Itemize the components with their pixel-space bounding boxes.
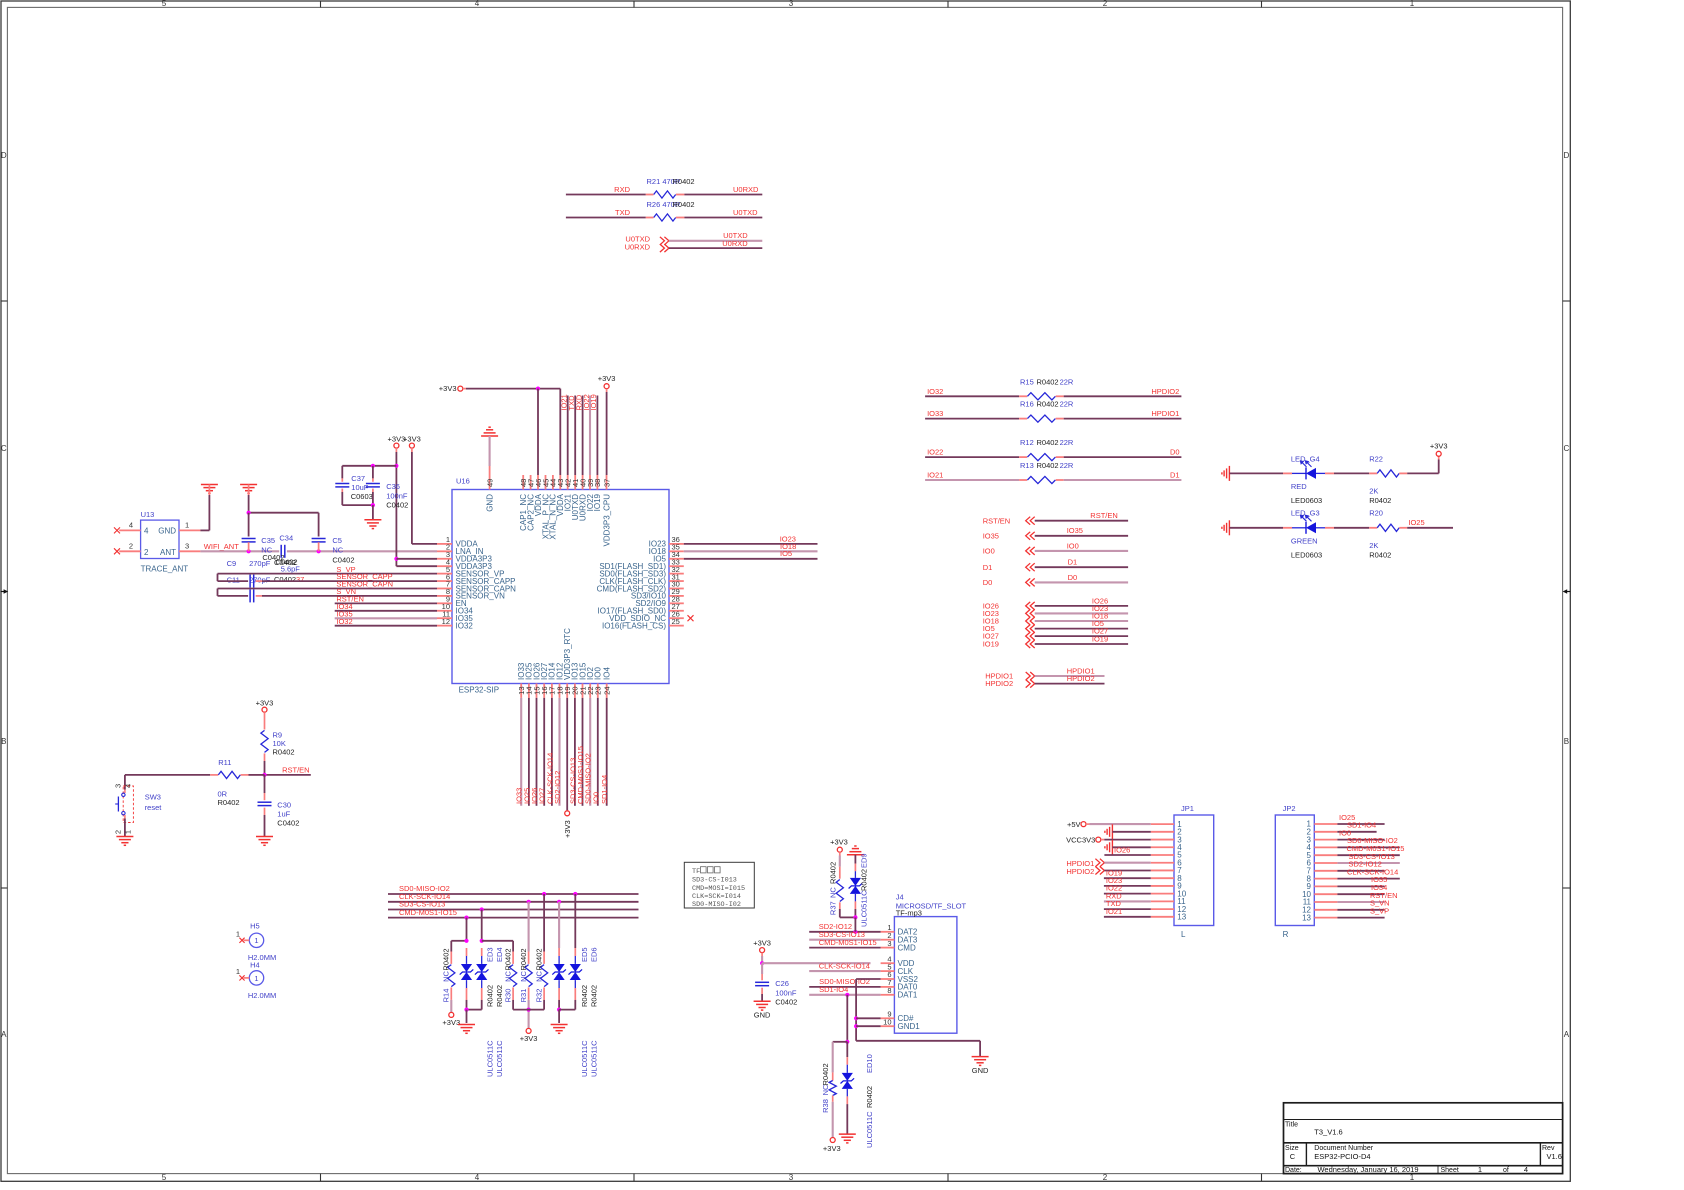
svg-text:R0402: R0402 (590, 985, 599, 1007)
svg-text:5: 5 (162, 0, 167, 8)
svg-text:ED6: ED6 (590, 947, 599, 962)
svg-text:IO16(FLASH_CS): IO16(FLASH_CS) (602, 621, 666, 630)
svg-text:1: 1 (236, 929, 240, 938)
svg-text:LED0603: LED0603 (1291, 551, 1322, 560)
svg-text:22R: 22R (1060, 461, 1074, 470)
svg-text:IO19: IO19 (983, 640, 999, 649)
svg-text:+3V3: +3V3 (823, 1144, 841, 1153)
svg-text:1: 1 (254, 936, 258, 945)
svg-text:U0RXD: U0RXD (733, 185, 759, 194)
svg-text:C0402: C0402 (274, 558, 296, 567)
svg-text:+3V3: +3V3 (753, 939, 771, 948)
svg-text:4: 4 (1524, 1165, 1528, 1174)
svg-text:R0402: R0402 (534, 948, 543, 970)
svg-text:SD1-IO4: SD1-IO4 (600, 775, 609, 804)
svg-text:HPDIO2: HPDIO2 (985, 679, 1013, 688)
svg-text:3: 3 (185, 542, 189, 551)
svg-text:CMD-M0S1-IO15: CMD-M0S1-IO15 (399, 908, 457, 917)
svg-text:Title: Title (1285, 1121, 1298, 1128)
svg-text:LED_G3: LED_G3 (1291, 509, 1320, 518)
svg-text:+3V3: +3V3 (563, 820, 572, 838)
svg-text:ULC0511C: ULC0511C (865, 1111, 874, 1148)
svg-text:R0402: R0402 (821, 1063, 830, 1085)
svg-text:TXD: TXD (615, 208, 631, 217)
svg-text:CLK-SCK-IO14: CLK-SCK-IO14 (819, 961, 870, 970)
svg-text:VDD3P3_CPU: VDD3P3_CPU (602, 494, 611, 547)
svg-text:WIFI_ANT: WIFI_ANT (204, 542, 239, 551)
svg-text:SD1-IO4: SD1-IO4 (819, 985, 848, 994)
svg-text:JP1: JP1 (1181, 804, 1194, 813)
svg-text:IO32: IO32 (336, 617, 352, 626)
svg-text:VCC3V3: VCC3V3 (1066, 836, 1095, 845)
svg-text:R31: R31 (519, 989, 528, 1003)
svg-text:C: C (1, 444, 7, 453)
svg-text:GREEN: GREEN (1291, 536, 1318, 545)
svg-text:R14: R14 (442, 989, 451, 1003)
svg-text:2: 2 (113, 830, 122, 834)
svg-text:NC: NC (442, 971, 451, 982)
svg-text:C37: C37 (351, 474, 365, 483)
svg-text:D1: D1 (1068, 558, 1078, 567)
svg-text:5: 5 (162, 1173, 167, 1182)
svg-text:C30: C30 (277, 801, 291, 810)
svg-text:ESP32-PCIO-D4: ESP32-PCIO-D4 (1314, 1152, 1370, 1161)
svg-text:3: 3 (789, 1173, 794, 1182)
svg-text:IO0: IO0 (1067, 541, 1079, 550)
svg-text:R11: R11 (218, 758, 231, 767)
svg-text:R0402: R0402 (865, 1086, 874, 1108)
svg-text:NC: NC (332, 546, 343, 555)
svg-text:Document Number: Document Number (1314, 1145, 1373, 1152)
svg-text:ED5: ED5 (580, 947, 589, 962)
svg-text:D1: D1 (1170, 471, 1180, 480)
svg-text:IO19: IO19 (1092, 634, 1108, 643)
svg-text:25: 25 (672, 617, 680, 626)
svg-text:IO0: IO0 (591, 792, 600, 804)
svg-text:CMD=MOSI=I015: CMD=MOSI=I015 (692, 885, 745, 893)
svg-text:NC: NC (503, 971, 512, 982)
svg-text:C: C (1290, 1152, 1296, 1161)
svg-text:HPDIO1: HPDIO1 (1151, 409, 1179, 418)
svg-text:Rev: Rev (1542, 1145, 1555, 1152)
svg-text:TF-mp3: TF-mp3 (896, 908, 922, 917)
svg-text:1: 1 (254, 974, 258, 983)
svg-text:R20: R20 (1369, 509, 1383, 518)
svg-text:HPDIO2: HPDIO2 (1151, 387, 1179, 396)
svg-text:DAT1: DAT1 (898, 991, 918, 1000)
svg-text:13: 13 (1177, 913, 1186, 922)
svg-text:12: 12 (442, 617, 450, 626)
svg-text:1: 1 (236, 967, 240, 976)
svg-text:IO21: IO21 (927, 471, 943, 480)
svg-text:IO19: IO19 (589, 394, 598, 410)
svg-text:R0402: R0402 (1369, 496, 1391, 505)
svg-text:37: 37 (602, 479, 611, 487)
svg-text:37: 37 (296, 575, 304, 584)
svg-text:Sheet: Sheet (1441, 1167, 1459, 1174)
svg-text:+3V3: +3V3 (1430, 441, 1448, 450)
svg-text:RXD: RXD (614, 185, 630, 194)
svg-text:SD1-IO4: SD1-IO4 (1347, 821, 1376, 830)
svg-text:R0402: R0402 (1037, 461, 1059, 470)
svg-text:CMD: CMD (898, 943, 916, 952)
svg-text:Wednesday, January 16, 2019: Wednesday, January 16, 2019 (1317, 1165, 1418, 1174)
svg-text:T3_V1.6: T3_V1.6 (1314, 1128, 1342, 1137)
svg-text:R0402: R0402 (273, 747, 295, 756)
svg-text:JP2: JP2 (1283, 804, 1296, 813)
svg-text:SW3: SW3 (145, 793, 161, 802)
svg-text:LED_G4: LED_G4 (1291, 454, 1320, 463)
svg-text:R22: R22 (1369, 454, 1383, 463)
svg-text:R32: R32 (534, 989, 543, 1003)
svg-text:D0: D0 (1068, 573, 1078, 582)
svg-text:R0402: R0402 (828, 862, 837, 884)
svg-text:IO21: IO21 (1106, 907, 1122, 916)
svg-text:23: 23 (594, 687, 603, 695)
svg-text:1uF: 1uF (277, 810, 290, 819)
svg-text:GND: GND (485, 494, 494, 512)
svg-text:100nF: 100nF (775, 988, 797, 997)
svg-text:C36: C36 (386, 482, 400, 491)
svg-text:IO5: IO5 (780, 549, 792, 558)
svg-text:R0402: R0402 (485, 985, 494, 1007)
svg-text:IO32: IO32 (927, 387, 943, 396)
svg-text:V1.6: V1.6 (1547, 1152, 1562, 1161)
svg-text:R13: R13 (1020, 461, 1034, 470)
svg-text:D0: D0 (1170, 448, 1180, 457)
svg-text:R0402: R0402 (1369, 551, 1391, 560)
svg-text:R0402: R0402 (218, 798, 240, 807)
svg-text:H5: H5 (250, 921, 260, 930)
svg-text:R30: R30 (503, 989, 512, 1003)
svg-text:IO35: IO35 (983, 531, 999, 540)
svg-text:C26: C26 (775, 979, 789, 988)
svg-text:C0402: C0402 (775, 997, 797, 1006)
svg-text:3: 3 (887, 939, 891, 948)
svg-text:D: D (1564, 151, 1570, 160)
svg-text:22R: 22R (1060, 400, 1074, 409)
svg-text:B: B (1, 737, 6, 746)
svg-text:D: D (1, 151, 7, 160)
svg-text:2: 2 (129, 542, 133, 551)
svg-text:2: 2 (1103, 0, 1108, 8)
svg-text:D0: D0 (983, 578, 993, 587)
svg-text:HPDIO2: HPDIO2 (1066, 867, 1094, 876)
svg-text:R0402: R0402 (580, 985, 589, 1007)
svg-text:4: 4 (129, 521, 133, 530)
svg-text:270pF: 270pF (249, 575, 271, 584)
svg-text:LED0603: LED0603 (1291, 496, 1322, 505)
svg-text:B: B (1564, 737, 1569, 746)
svg-text:4: 4 (124, 784, 133, 788)
svg-text:13: 13 (1302, 913, 1311, 922)
svg-text:C0402: C0402 (277, 819, 299, 828)
svg-text:reset: reset (145, 803, 163, 812)
svg-text:ED10: ED10 (865, 1054, 874, 1073)
svg-text:R0402: R0402 (673, 177, 695, 186)
svg-text:+3V3: +3V3 (598, 374, 616, 383)
svg-text:+3V3: +3V3 (830, 838, 848, 847)
svg-text:2K: 2K (1369, 486, 1378, 495)
svg-text:R0402: R0402 (860, 869, 869, 891)
svg-text:NC: NC (821, 1084, 830, 1095)
svg-text:CMD-M0S1-IO15: CMD-M0S1-IO15 (819, 938, 877, 947)
svg-text:A: A (1564, 1030, 1570, 1039)
svg-text:2: 2 (144, 548, 149, 557)
svg-text:A: A (1, 1030, 7, 1039)
svg-text:+3V3: +3V3 (442, 1018, 460, 1027)
svg-text:IO32: IO32 (456, 621, 474, 630)
svg-text:CLK=SCK=I014: CLK=SCK=I014 (692, 893, 741, 901)
svg-text:RST/EN: RST/EN (282, 765, 310, 774)
svg-text:C0402: C0402 (386, 501, 408, 510)
svg-text:R15: R15 (1020, 377, 1034, 386)
svg-text:R0402: R0402 (503, 948, 512, 970)
svg-text:H2.0MM: H2.0MM (248, 991, 276, 1000)
svg-text:of: of (1503, 1167, 1509, 1174)
svg-text:ED9: ED9 (860, 853, 869, 868)
svg-text:ULC0511C: ULC0511C (495, 1040, 504, 1077)
svg-text:GND: GND (158, 526, 176, 535)
svg-text:100nF: 100nF (386, 492, 408, 501)
svg-text:38: 38 (593, 479, 602, 487)
svg-text:U0TXD: U0TXD (733, 208, 758, 217)
svg-text:GND: GND (972, 1066, 989, 1075)
svg-text:+3V3: +3V3 (403, 435, 421, 444)
svg-text:IO0: IO0 (983, 547, 995, 556)
svg-text:RST/EN: RST/EN (1090, 511, 1118, 520)
svg-text:D1: D1 (983, 563, 993, 572)
svg-text:24: 24 (603, 687, 612, 695)
svg-text:C0402: C0402 (332, 556, 354, 565)
svg-text:TF: TF (692, 868, 700, 876)
svg-text:SD0-MISO-I02: SD0-MISO-I02 (692, 901, 741, 909)
svg-text:Size: Size (1285, 1145, 1299, 1152)
svg-text:10: 10 (883, 1017, 891, 1026)
svg-text:R0402: R0402 (1037, 438, 1059, 447)
svg-text:R38: R38 (821, 1099, 830, 1113)
svg-text:22R: 22R (1060, 377, 1074, 386)
svg-text:U0RXD: U0RXD (625, 242, 651, 251)
svg-text:S_VP: S_VP (1370, 906, 1389, 915)
svg-text:IO35: IO35 (1067, 526, 1083, 535)
svg-text:IO4: IO4 (603, 667, 612, 680)
svg-text:IO0: IO0 (594, 667, 603, 680)
svg-text:U13: U13 (141, 510, 155, 519)
svg-text:C5: C5 (332, 536, 342, 545)
svg-text:1: 1 (124, 830, 133, 834)
svg-text:1: 1 (1410, 0, 1415, 8)
svg-text:R0402: R0402 (673, 200, 695, 209)
svg-text:GND: GND (754, 1011, 771, 1020)
svg-text:Date:: Date: (1285, 1167, 1302, 1174)
svg-text:IO19: IO19 (593, 493, 602, 511)
svg-text:C35: C35 (261, 536, 275, 545)
svg-text:ULC0511C: ULC0511C (860, 890, 869, 927)
svg-text:22R: 22R (1060, 438, 1074, 447)
svg-text:IO25: IO25 (1408, 518, 1424, 527)
svg-text:IO33: IO33 (927, 409, 943, 418)
svg-text:ED3: ED3 (485, 947, 494, 962)
svg-text:RED: RED (1291, 482, 1307, 491)
svg-text:4: 4 (475, 0, 480, 8)
svg-text:R16: R16 (1020, 400, 1034, 409)
svg-text:R0402: R0402 (442, 948, 451, 970)
svg-text:NC: NC (519, 971, 528, 982)
svg-text:SD2-IO12: SD2-IO12 (553, 771, 562, 804)
svg-text:49: 49 (485, 479, 494, 487)
svg-text:IO22: IO22 (927, 448, 943, 457)
svg-text:ULC0511C: ULC0511C (485, 1040, 494, 1077)
svg-text:TRACE_ANT: TRACE_ANT (141, 564, 189, 573)
svg-text:+3V3: +3V3 (256, 698, 274, 707)
svg-text:R: R (1283, 930, 1289, 939)
svg-text:3: 3 (789, 0, 794, 8)
svg-text:ULC0511C: ULC0511C (580, 1040, 589, 1077)
svg-text:3: 3 (113, 784, 122, 788)
svg-text:H4: H4 (250, 961, 260, 970)
svg-text:2: 2 (1103, 1173, 1108, 1182)
svg-text:+5V: +5V (1067, 820, 1081, 829)
svg-text:+3V3: +3V3 (520, 1034, 538, 1043)
svg-text:1: 1 (1478, 1165, 1482, 1174)
svg-text:1: 1 (185, 521, 189, 530)
svg-text:R0402: R0402 (1037, 400, 1059, 409)
svg-text:270pF: 270pF (249, 559, 271, 568)
svg-text:C34: C34 (279, 533, 293, 542)
svg-text:ESP32-SIP: ESP32-SIP (459, 686, 499, 695)
svg-text:NC: NC (534, 971, 543, 982)
svg-text:1: 1 (1410, 1173, 1415, 1182)
svg-text:ULC0511C: ULC0511C (590, 1040, 599, 1077)
svg-text:4: 4 (144, 526, 149, 535)
svg-text:U16: U16 (456, 477, 470, 486)
svg-text:IO26: IO26 (1114, 845, 1130, 854)
svg-text:L: L (1181, 930, 1186, 939)
svg-text:GND1: GND1 (898, 1022, 921, 1031)
svg-text:+3V3: +3V3 (439, 384, 457, 393)
svg-text:C0402: C0402 (274, 575, 296, 584)
svg-text:4: 4 (475, 1173, 480, 1182)
svg-text:C: C (1564, 444, 1570, 453)
svg-text:R0402: R0402 (519, 948, 528, 970)
svg-text:C9: C9 (227, 559, 237, 568)
svg-text:HPDIO2: HPDIO2 (1067, 674, 1095, 683)
svg-text:R0402: R0402 (1037, 377, 1059, 386)
svg-text:R12: R12 (1020, 438, 1034, 447)
svg-text:C11: C11 (227, 575, 240, 584)
svg-text:R37: R37 (828, 901, 837, 915)
svg-text:C0603: C0603 (351, 492, 373, 501)
svg-text:2K: 2K (1369, 541, 1378, 550)
svg-text:NC: NC (828, 887, 837, 898)
svg-text:U0RXD: U0RXD (722, 239, 748, 248)
svg-text:8: 8 (887, 986, 891, 995)
svg-text:ANT: ANT (160, 548, 176, 557)
svg-text:RST/EN: RST/EN (983, 516, 1011, 525)
svg-text:SD3-CS-I013: SD3-CS-I013 (692, 877, 737, 885)
